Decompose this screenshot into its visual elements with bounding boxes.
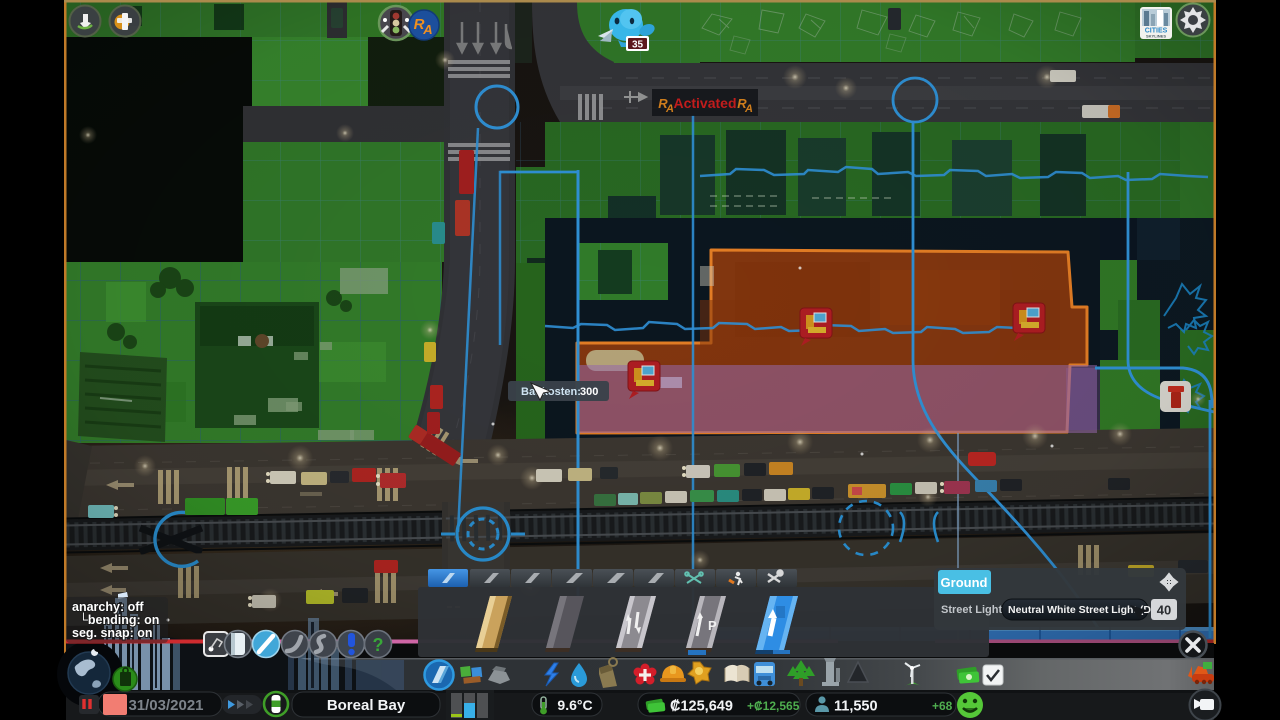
svg-text:300: 300: [580, 386, 598, 398]
svg-text:P: P: [708, 618, 717, 633]
svg-text:31/03/2021: 31/03/2021: [128, 697, 203, 714]
svg-text:Boreal Bay: Boreal Bay: [327, 697, 406, 714]
svg-text:40: 40: [1157, 603, 1171, 618]
svg-text:Ground: Ground: [941, 575, 988, 590]
svg-text:A: A: [422, 22, 432, 37]
svg-text:35: 35: [632, 40, 644, 51]
svg-text:₡125,649: ₡125,649: [670, 699, 733, 715]
svg-text:Street Light: Street Light: [941, 604, 1002, 616]
svg-text:SKYLINES: SKYLINES: [1146, 34, 1166, 39]
svg-text:?: ?: [373, 635, 384, 655]
svg-text:seg. snap: on: seg. snap: on: [72, 626, 153, 640]
svg-text:11,550: 11,550: [834, 699, 878, 715]
svg-text:+₡12,565: +₡12,565: [747, 699, 800, 713]
svg-text:9.6°C: 9.6°C: [557, 697, 592, 713]
svg-text:Neutral White Street Light (D: Neutral White Street Light (D: [1008, 604, 1151, 616]
svg-text:anarchy: off: anarchy: off: [72, 600, 144, 614]
svg-text:+68: +68: [932, 699, 953, 713]
svg-text:└bending: on: └bending: on: [79, 612, 159, 627]
